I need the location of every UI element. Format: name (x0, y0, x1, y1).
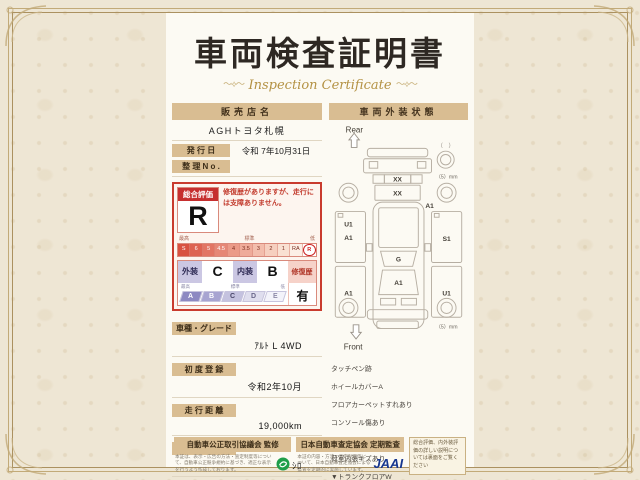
overall-evaluation-label: 総合評価 (178, 188, 218, 201)
corner-ornament-icon (592, 2, 638, 48)
letter-scale-cell: B (200, 291, 224, 302)
tread-depth-right-rear: （5）mm (436, 174, 458, 181)
certificate-panel: 車両検査証明書 ～⟡～ Inspection Certificate ～⟡～ 販… (166, 13, 474, 467)
exterior-condition-header: 車両外装状態 (329, 103, 468, 120)
rear-label: Rear (346, 125, 364, 134)
finding-item: フロアカーペットすれあり (331, 402, 468, 411)
vehicle-info-column: 販売店名 AGHトヨタ札幌 発 行 日 令和 7年10月31日 整 理 N o … (172, 103, 322, 480)
assessment-text: 本証の内容・方法・査定制度等について、日本自動車査定協会による監査を定期的に実施… (297, 454, 370, 473)
car-top-view-icon: Rear （ ） （5）mm XX XX A1 S1 U1 U1 A1 A1 G (329, 121, 468, 355)
grade-scale-cell: 4.5 (215, 244, 227, 256)
mark-trunk-top: XX (393, 176, 402, 183)
grade-scale-cell: RA (290, 244, 302, 256)
field-label: 車種・グレード (172, 322, 236, 335)
field-mileage: 走 行 距 離 19,000km (172, 398, 322, 436)
repair-history-value: 有 (288, 283, 316, 305)
finding-item: ホイールカバーA (331, 384, 468, 393)
scale-label-low: 低 (310, 235, 315, 242)
repair-history-label: 修復歴 (288, 261, 316, 283)
grade-scale-cell: 3.5 (240, 244, 252, 256)
grade-scale-cell: 6 (190, 244, 202, 256)
corner-ornament-icon (592, 432, 638, 478)
mark-right-rear-fender: A1 (425, 203, 434, 210)
overall-evaluation-box: 総合評価 R 修復歴がありますが、走行には支障ありません。 最高 標準 低 S … (172, 182, 322, 311)
mark-left-front-panel: A1 (344, 291, 353, 298)
grade-scale-cell: 5 (203, 244, 215, 256)
letter-scale-label-high: 最高 (181, 284, 190, 290)
flourish-left: ～⟡～ (223, 79, 244, 89)
grade-scale-cell: 3 (253, 244, 265, 256)
finding-item: タッチペン跡 (331, 366, 468, 375)
corner-ornament-icon (2, 432, 48, 478)
tread-depth-right-front: （5）mm (436, 324, 458, 331)
jaai-logo: JAAI (373, 456, 403, 471)
ref-no-label: 整 理 N o . (172, 160, 230, 173)
subtitle-row: ～⟡～ Inspection Certificate ～⟡～ (172, 76, 468, 94)
footer-row: 自動車公正取引協議会 監修 本証は、表示・広告の方法・査定制度等について、自動車… (174, 437, 466, 475)
evaluation-note: 修復歴がありますが、走行には支障ありません。 (219, 187, 317, 233)
flourish-right: ～⟡～ (396, 79, 417, 89)
field-first-registration: 初 度 登 録 令和2年10月 (172, 357, 322, 398)
car-exterior-diagram: Rear （ ） （5）mm XX XX A1 S1 U1 U1 A1 A1 G (329, 121, 468, 355)
mark-right-front-panel: U1 (442, 291, 451, 298)
overall-grade-cell: 総合評価 R (177, 187, 219, 233)
mark-trunk: XX (393, 191, 402, 198)
page-title: 車両検査証明書 (172, 27, 468, 75)
grade-scale-cell: 2 (265, 244, 277, 256)
letter-scale-label-mid: 標準 (231, 284, 240, 290)
corner-ornament-icon (2, 2, 48, 48)
fair-trade-mark-icon (276, 457, 290, 471)
exterior-grade: C (202, 261, 233, 283)
letter-scale-cell: D (242, 291, 266, 302)
sub-grades: 外装 C 内装 B 修復歴 最高 標準 低 A (177, 260, 317, 306)
field-value: ｱﾙﾄ L 4WD (172, 339, 322, 352)
interior-grade: B (257, 261, 288, 283)
grade-scale-cell: 4 (228, 244, 240, 256)
mark-hood: A1 (394, 280, 403, 287)
spare-note: （ ） (437, 142, 454, 149)
grade-scale-cell-selected: R (303, 244, 316, 256)
grade-scale-cell: S (178, 244, 190, 256)
exterior-label: 外装 (178, 261, 202, 283)
letter-scale-label-low: 低 (281, 284, 286, 290)
back-side-note: 総合評価、内外装評価の詳しい説明については裏面をご覧ください (409, 437, 466, 475)
dealer-name: AGHトヨタ札幌 (172, 120, 322, 141)
field-model-grade: 車種・グレード ｱﾙﾄ L 4WD (172, 316, 322, 357)
exterior-condition-column: 車両外装状態 (329, 103, 468, 480)
letter-scale-cell: E (263, 291, 287, 302)
mark-left-rear-panel-b: A1 (344, 235, 353, 242)
mark-windshield: G (396, 257, 401, 264)
field-label: 走 行 距 離 (172, 404, 236, 417)
assessment-box: 日本自動車査定協会 定期監査 本証の内容・方法・査定制度等について、日本自動車査… (296, 437, 404, 475)
issue-date-value: 令和 7年10月31日 (230, 145, 322, 157)
issue-date-label: 発 行 日 (172, 144, 230, 157)
scale-label-high: 最高 (179, 235, 189, 242)
dealer-header: 販売店名 (172, 103, 322, 120)
finding-item: コンソール傷あり (331, 420, 468, 429)
mark-right-rear-panel: S1 (443, 236, 451, 243)
front-label: Front (344, 342, 363, 351)
interior-label: 内装 (233, 261, 257, 283)
letter-scale-cell: A (179, 291, 203, 302)
scale-label-mid: 標準 (244, 235, 254, 242)
field-value: 令和2年10月 (172, 380, 322, 393)
letter-scale: 最高 標準 低 A B C D E (178, 283, 288, 305)
inspection-certificate: 車両検査証明書 ～⟡～ Inspection Certificate ～⟡～ 販… (0, 0, 640, 480)
overall-grade: R (178, 201, 218, 232)
field-label: 初 度 登 録 (172, 363, 236, 376)
grade-scale: S 6 5 4.5 4 3.5 3 2 1 RA R (177, 243, 317, 257)
ref-no-row: 整 理 N o . (172, 160, 322, 177)
issue-date-row: 発 行 日 令和 7年10月31日 (172, 144, 322, 157)
fair-trade-title: 自動車公正取引協議会 監修 (174, 437, 291, 452)
assessment-title: 日本自動車査定協会 定期監査 (296, 437, 404, 452)
grade-scale-labels: 最高 標準 低 (177, 235, 317, 242)
grade-scale-cell: 1 (278, 244, 290, 256)
field-value: 19,000km (172, 421, 322, 431)
mark-left-rear-panel-a: U1 (344, 222, 353, 229)
page-subtitle: Inspection Certificate (248, 78, 391, 93)
letter-scale-cell: C (221, 291, 245, 302)
fair-trade-box: 自動車公正取引協議会 監修 本証は、表示・広告の方法・査定制度等について、自動車… (174, 437, 291, 475)
fair-trade-text: 本証は、表示・広告の方法・査定制度等について、自動車公正競争規約に基づき、適正な… (175, 454, 273, 473)
